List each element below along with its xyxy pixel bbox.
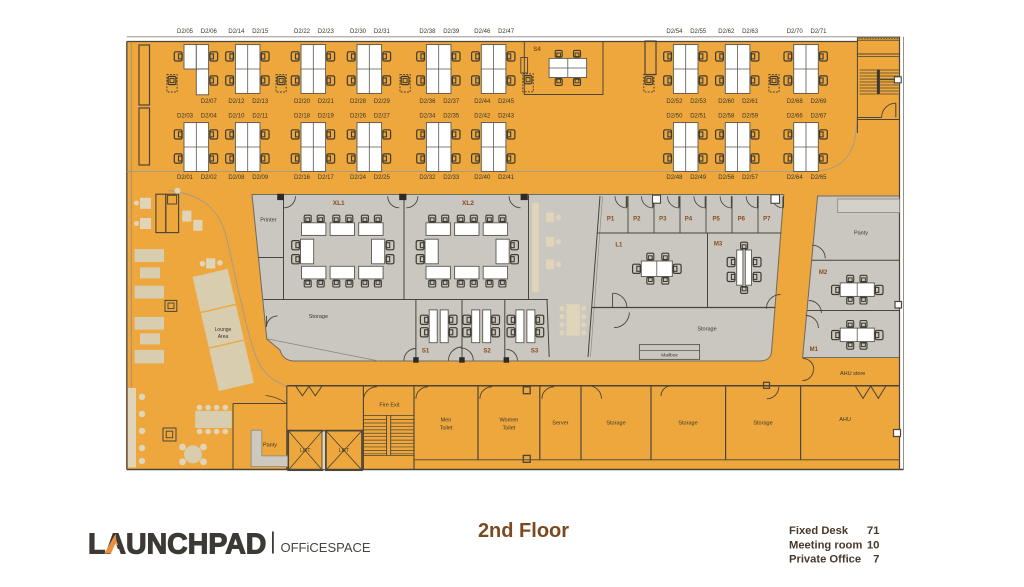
svg-text:Fire Exit: Fire Exit [379,403,400,409]
svg-text:P4: P4 [685,217,693,223]
svg-text:Server: Server [552,421,568,427]
svg-text:D2/27: D2/27 [374,113,391,119]
svg-text:7: 7 [873,554,879,566]
svg-text:D2/58: D2/58 [718,113,735,119]
svg-text:D2/17: D2/17 [318,175,335,181]
svg-text:AHU store: AHU store [840,371,865,377]
svg-text:OFFiCESPACE: OFFiCESPACE [281,540,371,555]
svg-text:D2/44: D2/44 [474,99,491,105]
svg-text:P5: P5 [713,217,721,223]
svg-text:D2/49: D2/49 [690,175,707,181]
svg-text:D2/20: D2/20 [294,99,311,105]
svg-text:D2/57: D2/57 [742,175,759,181]
svg-text:D2/33: D2/33 [443,175,460,181]
svg-text:D2/14: D2/14 [228,29,245,35]
svg-text:D2/34: D2/34 [419,113,436,119]
svg-text:D2/45: D2/45 [498,99,515,105]
svg-text:D2/25: D2/25 [374,175,391,181]
svg-text:Area: Area [218,334,229,340]
svg-text:Storage: Storage [309,314,328,320]
svg-text:AHU: AHU [839,417,851,423]
svg-text:D2/46: D2/46 [474,29,491,35]
svg-text:D2/35: D2/35 [443,113,460,119]
svg-text:Toilet: Toilet [502,426,515,432]
svg-text:Private Office: Private Office [789,554,861,566]
svg-text:D2/62: D2/62 [718,29,735,35]
svg-text:Storage: Storage [606,421,625,427]
svg-text:D2/55: D2/55 [690,29,707,35]
svg-text:D2/22: D2/22 [294,29,311,35]
svg-text:D2/23: D2/23 [318,29,335,35]
svg-text:Lounge: Lounge [215,327,232,333]
svg-text:Meeting room: Meeting room [789,540,862,552]
svg-text:D2/59: D2/59 [742,113,759,119]
svg-text:D2/11: D2/11 [252,113,268,119]
svg-text:M1: M1 [810,347,819,353]
svg-text:D2/70: D2/70 [787,29,804,35]
svg-text:D2/26: D2/26 [350,113,367,119]
svg-text:D2/68: D2/68 [787,99,804,105]
svg-text:XL1: XL1 [333,200,345,207]
svg-text:D2/08: D2/08 [228,175,245,181]
svg-text:D2/69: D2/69 [810,99,827,105]
svg-text:D2/06: D2/06 [201,29,218,35]
svg-text:D2/18: D2/18 [294,113,311,119]
svg-text:D2/21: D2/21 [318,99,335,105]
svg-text:D2/48: D2/48 [666,175,683,181]
svg-text:M2: M2 [819,270,828,276]
svg-text:D2/15: D2/15 [252,29,269,35]
svg-text:P2: P2 [633,217,641,223]
svg-text:D2/51: D2/51 [690,113,707,119]
svg-text:D2/13: D2/13 [252,99,269,105]
svg-text:D2/66: D2/66 [787,113,804,119]
svg-text:D2/07: D2/07 [201,99,218,105]
svg-text:D2/38: D2/38 [419,29,436,35]
svg-text:D2/60: D2/60 [718,99,735,105]
svg-text:D2/02: D2/02 [201,175,218,181]
svg-text:D2/61: D2/61 [742,99,759,105]
svg-text:D2/63: D2/63 [742,29,759,35]
svg-text:D2/12: D2/12 [228,99,245,105]
svg-text:D2/05: D2/05 [177,29,194,35]
svg-text:2nd Floor: 2nd Floor [478,520,569,542]
svg-text:D2/36: D2/36 [419,99,436,105]
svg-text:D2/37: D2/37 [443,99,460,105]
svg-text:D2/47: D2/47 [498,29,515,35]
svg-text:D2/16: D2/16 [294,175,311,181]
svg-text:D2/52: D2/52 [666,99,683,105]
svg-text:D2/30: D2/30 [350,29,367,35]
svg-text:D2/64: D2/64 [787,175,804,181]
svg-text:D2/01: D2/01 [177,175,194,181]
svg-text:D2/10: D2/10 [228,113,245,119]
svg-text:D2/28: D2/28 [350,99,367,105]
svg-text:10: 10 [867,540,880,552]
svg-text:M3: M3 [714,242,723,248]
svg-text:D2/65: D2/65 [810,175,827,181]
svg-text:Women: Women [499,418,518,424]
svg-text:D2/67: D2/67 [810,113,827,119]
svg-text:Panty: Panty [854,231,868,237]
svg-text:Storage: Storage [753,421,772,427]
svg-text:S4: S4 [533,47,541,53]
svg-text:D2/71: D2/71 [810,29,827,35]
svg-text:S2: S2 [483,349,491,355]
svg-text:D2/43: D2/43 [498,113,515,119]
svg-text:D2/39: D2/39 [443,29,460,35]
svg-text:D2/31: D2/31 [374,29,391,35]
svg-text:D2/50: D2/50 [666,113,683,119]
svg-text:L1: L1 [615,242,623,248]
svg-text:Printer: Printer [260,218,276,224]
svg-text:LIFT: LIFT [300,448,310,454]
svg-text:D2/19: D2/19 [318,113,335,119]
svg-text:Toilet: Toilet [440,426,453,432]
svg-text:D2/24: D2/24 [350,175,367,181]
svg-text:S3: S3 [531,349,539,355]
svg-text:71: 71 [867,525,880,537]
svg-text:D2/04: D2/04 [201,113,218,119]
svg-text:D2/42: D2/42 [474,113,491,119]
svg-text:S1: S1 [422,349,430,355]
svg-text:D2/32: D2/32 [419,175,436,181]
svg-text:Storage: Storage [678,421,697,427]
svg-text:Men: Men [441,418,452,424]
svg-text:P7: P7 [763,217,771,223]
svg-text:Mailbox: Mailbox [661,353,678,359]
svg-text:XL2: XL2 [462,200,474,207]
svg-text:Storage: Storage [697,327,716,333]
svg-text:Panty: Panty [263,443,277,449]
svg-text:P6: P6 [738,217,746,223]
svg-text:D2/29: D2/29 [374,99,391,105]
svg-text:D2/54: D2/54 [666,29,683,35]
svg-text:D2/41: D2/41 [498,175,515,181]
svg-text:D2/09: D2/09 [252,175,269,181]
svg-text:P3: P3 [659,217,667,223]
svg-text:D2/56: D2/56 [718,175,735,181]
svg-text:D2/53: D2/53 [690,99,707,105]
svg-text:D2/03: D2/03 [177,113,194,119]
svg-text:LIFT: LIFT [339,448,349,454]
svg-text:D2/40: D2/40 [474,175,491,181]
svg-text:Fixed Desk: Fixed Desk [789,525,849,537]
svg-text:P1: P1 [607,217,615,223]
